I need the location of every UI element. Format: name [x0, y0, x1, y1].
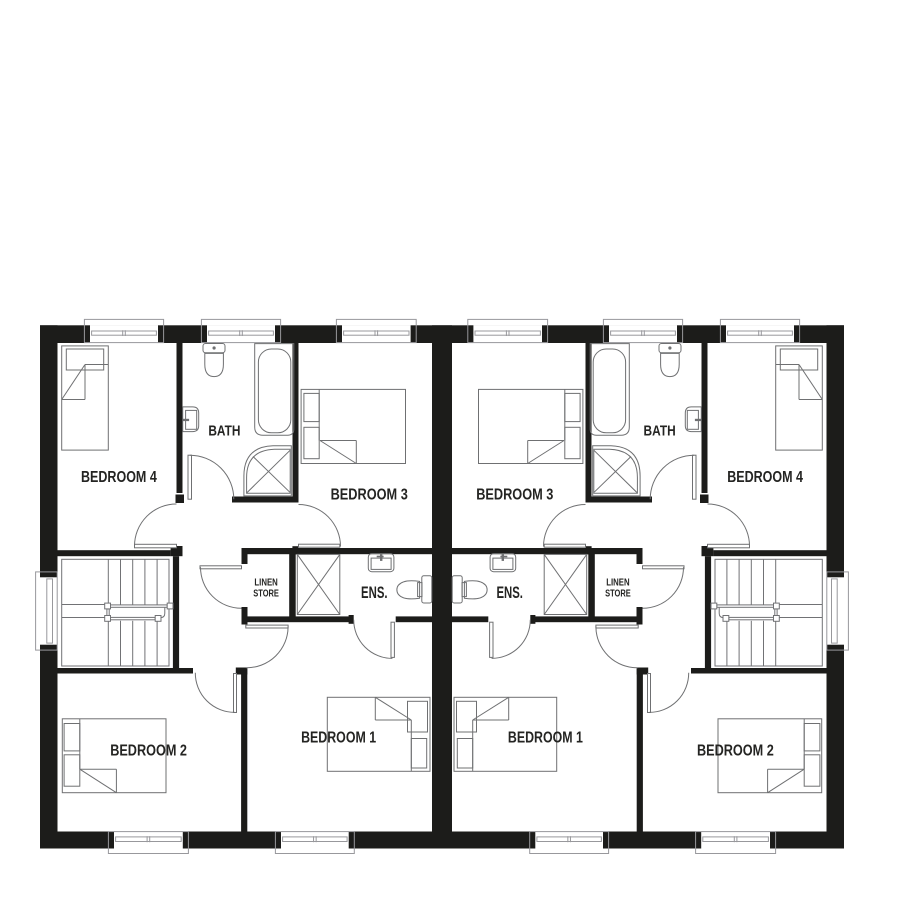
svg-text:LINEN: LINEN [606, 578, 629, 589]
svg-text:BATH: BATH [208, 422, 240, 439]
svg-text:STORE: STORE [605, 588, 631, 599]
svg-text:BEDROOM 1: BEDROOM 1 [508, 729, 583, 746]
svg-text:BEDROOM 4: BEDROOM 4 [727, 469, 803, 486]
svg-text:STORE: STORE [253, 588, 279, 599]
svg-text:BEDROOM 4: BEDROOM 4 [81, 469, 157, 486]
svg-text:BEDROOM 3: BEDROOM 3 [331, 486, 408, 503]
svg-text:ENS.: ENS. [496, 584, 523, 602]
svg-text:BEDROOM 3: BEDROOM 3 [476, 486, 553, 503]
svg-text:BEDROOM 1: BEDROOM 1 [301, 729, 376, 746]
svg-text:ENS.: ENS. [361, 584, 388, 602]
svg-text:BATH: BATH [644, 422, 676, 439]
svg-text:BEDROOM 2: BEDROOM 2 [697, 742, 774, 759]
svg-text:BEDROOM 2: BEDROOM 2 [110, 742, 187, 759]
svg-text:LINEN: LINEN [254, 578, 277, 589]
